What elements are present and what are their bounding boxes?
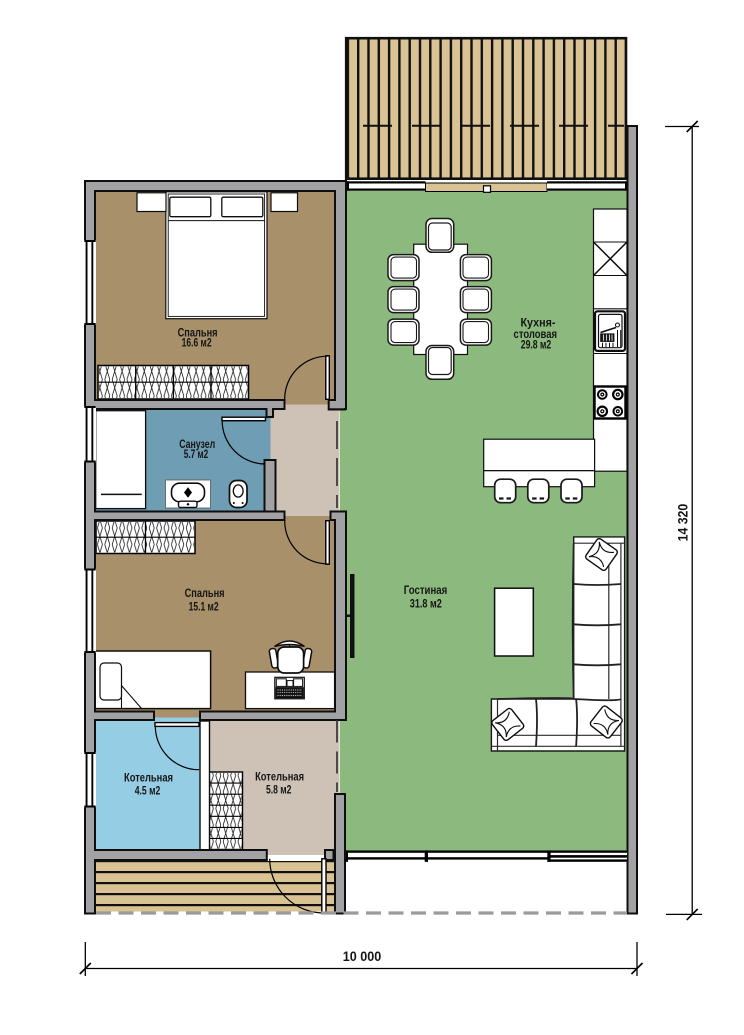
- svg-text:31.8 м2: 31.8 м2: [410, 598, 442, 610]
- svg-text:Гостиная: Гостиная: [404, 585, 448, 597]
- svg-text:Котельная: Котельная: [124, 773, 173, 785]
- svg-text:10 000: 10 000: [343, 948, 382, 964]
- svg-text:Котельная: Котельная: [255, 772, 304, 784]
- svg-text:16.6 м2: 16.6 м2: [182, 337, 212, 349]
- svg-text:15.1 м2: 15.1 м2: [189, 601, 219, 613]
- svg-text:5.7 м2: 5.7 м2: [184, 449, 209, 461]
- svg-text:Спальня: Спальня: [185, 588, 225, 600]
- svg-text:29.8 м2: 29.8 м2: [521, 339, 552, 351]
- svg-text:14 320: 14 320: [675, 504, 691, 542]
- svg-text:4.5 м2: 4.5 м2: [135, 785, 161, 797]
- svg-text:5.8 м2: 5.8 м2: [266, 784, 292, 796]
- svg-text:Кухня-: Кухня-: [521, 317, 556, 329]
